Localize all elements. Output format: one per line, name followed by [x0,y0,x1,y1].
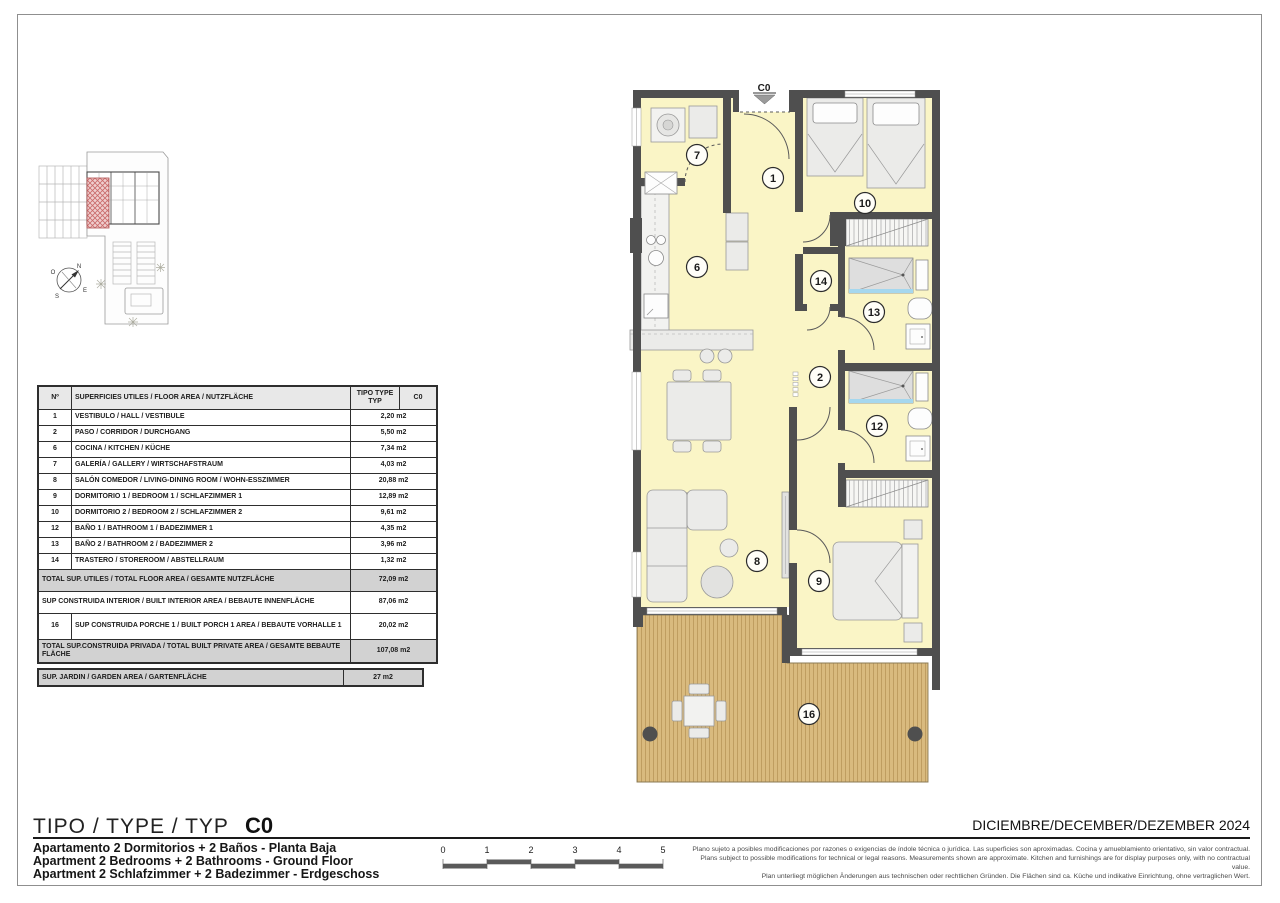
pouf [720,539,738,557]
compass-north-label: N [77,264,81,270]
svg-text:2: 2 [817,372,823,384]
total-utiles-row: TOTAL SUP. UTILES / TOTAL FLOOR AREA / G… [38,569,437,591]
kitchen-counter [641,186,669,340]
disclaimer-es: Plano sujeto a posibles modificaciones p… [690,845,1250,854]
total-privada-row: TOTAL SUP.CONSTRUIDA PRIVADA / TOTAL BUI… [38,639,437,663]
legal-disclaimer: Plano sujeto a posibles modificaciones p… [690,845,1250,881]
nightstand [904,623,922,642]
tv-cabinet [782,492,789,578]
table-row: 13BAÑO 2 / BATHROOM 2 / BADEZIMMER 23,96… [38,537,437,553]
svg-text:10: 10 [859,198,871,210]
site-plan: N O S E [35,138,185,338]
pool-building [125,288,163,314]
disclaimer-en: Plans subject to possible modifications … [690,854,1250,872]
room-label-2: 2 [810,367,831,388]
table-row: 14TRASTERO / STOREROOM / ABSTELLRAUM1,32… [38,553,437,569]
garden-row: SUP. JARDIN / GARDEN AREA / GARTENFLÄCHE… [38,669,423,686]
room-label-7: 7 [687,145,708,166]
chair [689,728,709,738]
svg-text:0: 0 [440,845,445,855]
built-interior-row: SUP CONSTRUIDA INTERIOR / BUILT INTERIOR… [38,591,437,613]
single-bed [867,98,925,188]
subtitle-de: Apartment 2 Schlafzimmer + 2 Badezimmer … [33,868,379,881]
corridor-radiator [793,372,798,396]
laundry-appliance [689,106,717,138]
chair [716,701,726,721]
svg-text:5: 5 [660,845,665,855]
header-desc: SUPERFICIES UTILES / FLOOR AREA / NUTZFL… [72,386,351,409]
type-title-code: C0 [245,813,273,838]
compass-west-label: O [51,270,56,276]
room-label-13: 13 [864,302,885,323]
room-label-12: 12 [867,416,888,437]
svg-text:1: 1 [484,845,489,855]
compass-icon: N O S E [51,264,87,300]
disclaimer-de: Plan unterliegt möglichen Änderungen aus… [690,872,1250,881]
chair [703,370,721,381]
table-row: 6COCINA / KITCHEN / KÜCHE7,34 m2 [38,441,437,457]
svg-text:6: 6 [694,262,700,274]
neighbor-grid [39,166,87,238]
room-label-6: 6 [687,257,708,278]
room-label-10: 10 [855,193,876,214]
washing-machine [651,108,685,142]
porch-post [908,727,923,742]
room-label-1: 1 [763,168,784,189]
wardrobe [846,219,928,246]
compass-east-label: E [83,288,87,294]
sink [906,324,930,349]
subtitle-es: Apartamento 2 Dormitorios + 2 Baños - Pl… [33,842,379,855]
svg-text:1: 1 [770,173,776,185]
table-row: 2PASO / CORRIDOR / DURCHGANG5,50 m2 [38,425,437,441]
svg-text:14: 14 [815,276,828,288]
area-table: Nº SUPERFICIES UTILES / FLOOR AREA / NUT… [37,385,409,687]
svg-text:13: 13 [868,307,880,319]
table-row: 7GALERÍA / GALLERY / WIRTSCHAFSTRAUM4,03… [38,457,437,473]
room-label-8: 8 [747,551,768,572]
stool [700,349,714,363]
garden-table: SUP. JARDIN / GARDEN AREA / GARTENFLÄCHE… [37,668,424,687]
stool [718,349,732,363]
toilet [908,298,932,319]
chair [672,701,682,721]
compass-south-label: S [55,294,59,300]
svg-text:9: 9 [816,576,822,588]
table-row: 9DORMITORIO 1 / BEDROOM 1 / SCHLAFZIMMER… [38,489,437,505]
svg-text:2: 2 [528,845,533,855]
scale-bar: 0 1 2 3 4 5 [433,843,673,875]
room-label-9: 9 [809,571,830,592]
svg-text:8: 8 [754,556,760,568]
svg-text:4: 4 [616,845,621,855]
scale-bar-segments [443,860,663,869]
entrance-label: C0 [758,83,771,94]
area-table-header: Nº SUPERFICIES UTILES / FLOOR AREA / NUT… [38,386,437,409]
porch-post [643,727,658,742]
dining-table [667,370,731,452]
svg-text:16: 16 [803,709,815,721]
plan-sheet: N O S E Nº SUPERFICIES UTILES / FLOOR AR… [0,0,1280,903]
type-title-label: TIPO / TYPE / TYP [33,815,229,838]
coffee-table [701,566,733,598]
table-row: 12BAÑO 1 / BATHROOM 1 / BADEZIMMER 14,35… [38,521,437,537]
room-label-14: 14 [811,271,832,292]
header-num: Nº [38,386,72,409]
apartment-subtitles: Apartamento 2 Dormitorios + 2 Baños - Pl… [33,842,379,880]
header-tipo: TIPO TYPE TYP [351,386,400,409]
room-label-16: 16 [799,704,820,725]
type-title: TIPO / TYPE / TYPC0 [33,813,273,839]
toilet [908,408,932,429]
laundry-sink [645,172,677,194]
table-row: 10DORMITORIO 2 / BEDROOM 2 / SCHLAFZIMME… [38,505,437,521]
chair [673,441,691,452]
table-row: 1VESTIBULO / HALL / VESTIBULE2,20 m2 [38,409,437,425]
nightstand [904,520,922,539]
svg-text:12: 12 [871,421,883,433]
site-plan-unit-highlight [87,178,109,228]
floor-plan: C0 7 1 10 6 14 13 2 12 8 9 16 [627,82,942,794]
svg-text:3: 3 [572,845,577,855]
chair [689,684,709,694]
chair [703,441,721,452]
table-row: 8SALÓN COMEDOR / LIVING-DINING ROOM / WO… [38,473,437,489]
subtitle-en: Apartment 2 Bedrooms + 2 Bathrooms - Gro… [33,855,379,868]
header-code: C0 [400,386,438,409]
single-bed [807,98,863,176]
porch-area-row: 16 SUP CONSTRUIDA PORCHE 1 / BUILT PORCH… [38,613,437,639]
wardrobe [846,480,928,507]
svg-text:7: 7 [694,150,700,162]
sink [906,436,930,461]
chair [673,370,691,381]
date-line: DICIEMBRE/DECEMBER/DEZEMBER 2024 [972,817,1250,833]
